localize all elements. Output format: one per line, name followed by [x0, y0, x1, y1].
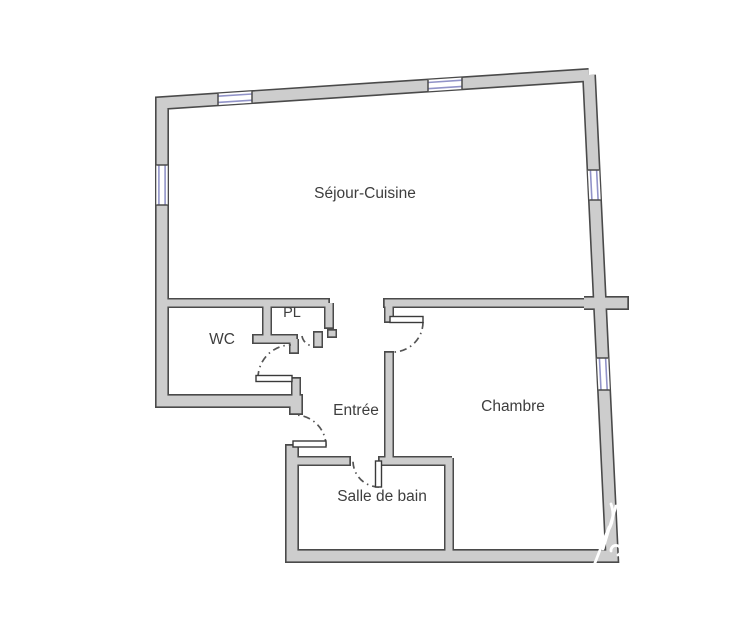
door-leaf	[256, 376, 292, 382]
window-right-lower	[597, 358, 610, 390]
exterior-wall	[162, 75, 589, 413]
window-top-right	[428, 78, 462, 92]
room-label-pl: PL	[283, 305, 301, 321]
window-gap	[603, 358, 605, 390]
bathroom-door	[353, 461, 382, 487]
room-label-sejour-cuisine: Séjour-Cuisine	[314, 185, 416, 202]
chambre-door	[390, 317, 423, 353]
room-label-wc: WC	[209, 331, 235, 348]
door-swing-arc	[258, 345, 291, 378]
window-gap	[218, 97, 252, 99]
door-swing-arc	[392, 322, 423, 352]
room-label-entree: Entrée	[333, 402, 379, 419]
entrance-door	[293, 415, 326, 447]
door-leaf	[293, 441, 326, 447]
window-right-upper	[588, 170, 601, 200]
window-top-left	[218, 91, 252, 105]
door-leaf	[376, 461, 382, 487]
door-swing-arc	[302, 336, 313, 346]
window-left	[156, 165, 167, 205]
pl-door	[302, 336, 313, 346]
floor-plan-canvas: Séjour-CuisineWCPLEntréeChambreSalle de …	[0, 0, 750, 630]
window-gap	[594, 170, 596, 200]
floor-plan-page: Séjour-CuisineWCPLEntréeChambreSalle de …	[0, 0, 750, 630]
room-label-chambre: Chambre	[481, 398, 545, 415]
wc-door	[256, 345, 292, 382]
room-label-salle-de-bain: Salle de bain	[337, 488, 427, 505]
door-leaf	[390, 317, 423, 323]
room-labels: Séjour-CuisineWCPLEntréeChambreSalle de …	[209, 185, 545, 505]
exterior-wall	[162, 75, 589, 415]
window-gap	[428, 83, 462, 85]
